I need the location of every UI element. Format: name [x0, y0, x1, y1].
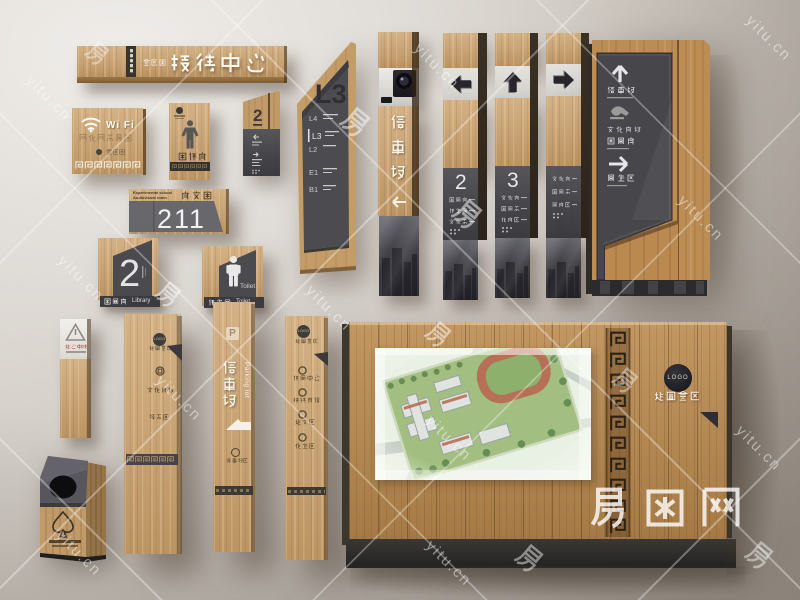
svg-text:L3: L3: [312, 131, 322, 141]
svg-text:2: 2: [253, 106, 262, 125]
svg-text:211: 211: [157, 204, 206, 234]
svg-text:L4: L4: [309, 114, 317, 123]
svg-text:Toilet: Toilet: [240, 283, 255, 290]
svg-text:2: 2: [119, 253, 140, 295]
svg-text:E1: E1: [309, 168, 318, 177]
svg-text:L3: L3: [315, 79, 347, 109]
svg-text:B1: B1: [309, 185, 318, 194]
svg-text:L2: L2: [309, 145, 317, 154]
